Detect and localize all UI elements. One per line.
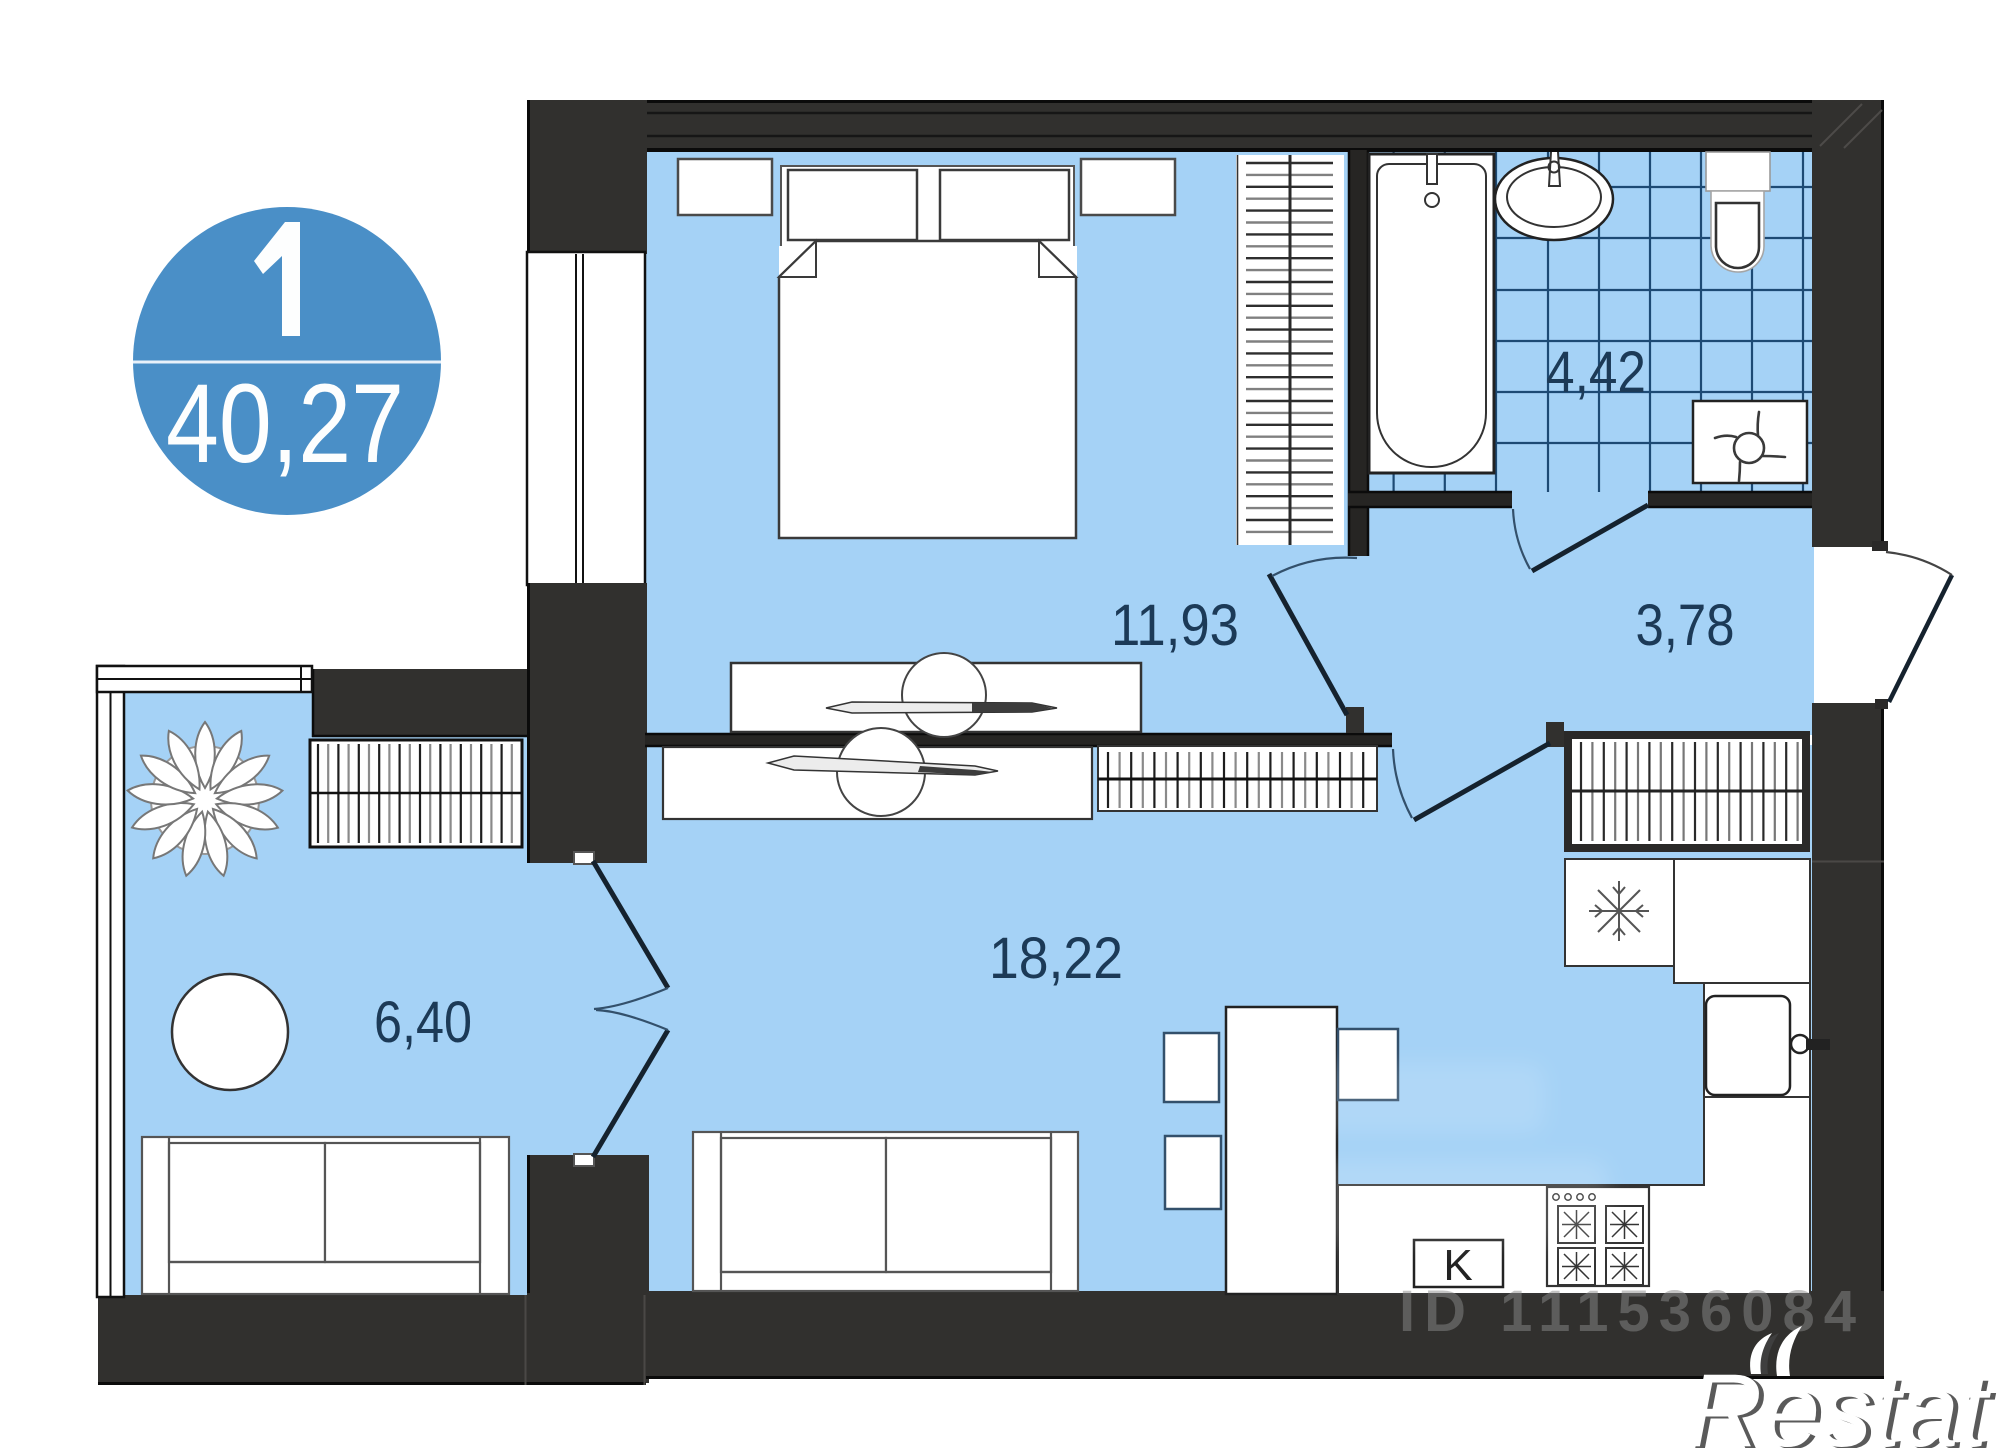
svg-text:6,40: 6,40 [374,990,472,1055]
svg-text:40,27: 40,27 [166,361,404,486]
svg-text:3,78: 3,78 [1636,593,1735,658]
svg-text:11,93: 11,93 [1111,593,1239,658]
svg-text:4,42: 4,42 [1546,340,1646,405]
svg-text:18,22: 18,22 [989,926,1123,991]
svg-text:Restate: Restate [1687,1353,2000,1448]
